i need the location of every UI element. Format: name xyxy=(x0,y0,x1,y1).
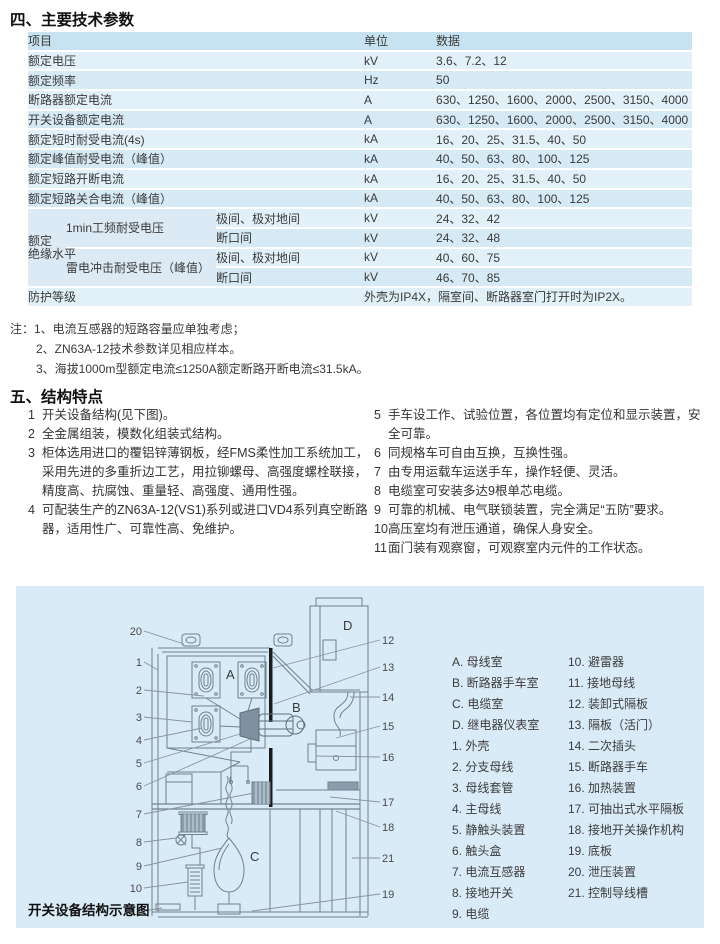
legend-column-2: 10. 避雷器 11. 接地母线 12. 装卸式隔板 13. 隔板（活门） 14… xyxy=(568,652,684,904)
legend-item: 6. 触头盒 xyxy=(452,841,539,862)
diagram-panel: 20 1 2 3 4 5 6 7 8 9 10 11 12 13 14 15 1… xyxy=(16,586,704,928)
row-data: 3.6、7.2、12 xyxy=(436,51,692,71)
row-unit: kA xyxy=(364,149,436,169)
row-data: 46、70、85 xyxy=(436,267,692,287)
legend-item: 19. 底板 xyxy=(568,841,684,862)
row-label: 防护等级 xyxy=(28,287,364,306)
legend-item: 5. 静触头装置 xyxy=(452,820,539,841)
callout-18: 18 xyxy=(382,822,394,834)
note-3: 3、海拔1000m型额定电流≤1250A额定断路开断电流≤31.5kA。 xyxy=(36,360,369,377)
parameters-table-wrap: 项目 单位 数据 额定电压 kV 3.6、7.2、12 额定频率 Hz 50 断… xyxy=(28,32,692,306)
feature-number: 2 xyxy=(28,425,35,444)
legend-column-1: A. 母线室 B. 断路器手车室 C. 电缆室 D. 继电器仪表室 1. 外壳 … xyxy=(452,652,539,925)
feature-item: 4 可配装生产的ZN63A-12(VS1)系列或进口VD4系列真空断路器，适用性… xyxy=(28,501,370,539)
row-scope: 断口间 xyxy=(216,267,364,287)
table-row-protection: 防护等级 外壳为IP4X，隔室间、断路器室门打开时为IP2X。 xyxy=(28,287,692,306)
table-row-insulation: 雷电冲击耐受电压（峰值） 极间、极对地间 kV 40、60、75 xyxy=(28,248,692,268)
compartment-A: A xyxy=(226,667,235,682)
legend-item: 3. 母线套管 xyxy=(452,778,539,799)
legend-item: 9. 电缆 xyxy=(452,904,539,925)
callout-6: 6 xyxy=(136,781,142,793)
legend-item: 14. 二次插头 xyxy=(568,736,684,757)
row-unit: kV xyxy=(364,208,436,228)
feature-text: 全金属组装，模数化组装式结构。 xyxy=(42,427,230,441)
callout-17: 17 xyxy=(382,797,394,809)
feature-item: 1 开关设备结构(见下图)。 xyxy=(28,406,370,425)
table-row-insulation: 额定 绝缘水平 1min工频耐受电压 极间、极对地间 kV 24、32、42 xyxy=(28,208,692,228)
row-unit: kA xyxy=(364,189,436,209)
callout-12: 12 xyxy=(382,635,394,647)
row-label: 额定电压 xyxy=(28,51,364,71)
row-data: 40、60、75 xyxy=(436,248,692,268)
row-data: 16、20、25、31.5、40、50 xyxy=(436,169,692,189)
feature-item: 8 电缆室可安装多达9根单芯电缆。 xyxy=(374,482,710,501)
row-scope: 断口间 xyxy=(216,228,364,248)
legend-item: A. 母线室 xyxy=(452,652,539,673)
feature-text: 电缆室可安装多达9根单芯电缆。 xyxy=(388,484,570,498)
row-label: 开关设备额定电流 xyxy=(28,110,364,130)
legend-item: B. 断路器手车室 xyxy=(452,673,539,694)
row-label: 断路器额定电流 xyxy=(28,90,364,110)
row-unit: kV xyxy=(364,51,436,71)
feature-text: 可配装生产的ZN63A-12(VS1)系列或进口VD4系列真空断路器，适用性广、… xyxy=(42,503,368,536)
row-unit: kA xyxy=(364,129,436,149)
callout-14: 14 xyxy=(382,692,394,704)
callout-1: 1 xyxy=(136,657,142,669)
row-label: 额定短时耐受电流(4s) xyxy=(28,129,364,149)
legend-item: D. 继电器仪表室 xyxy=(452,715,539,736)
feature-number: 1 xyxy=(28,406,35,425)
table-row: 开关设备额定电流 A 630、1250、1600、2000、2500、3150、… xyxy=(28,110,692,130)
parameters-table: 项目 单位 数据 额定电压 kV 3.6、7.2、12 额定频率 Hz 50 断… xyxy=(28,32,692,306)
note-2: 2、ZN63A-12技术参数详见相应样本。 xyxy=(36,340,241,357)
test-name: 1min工频耐受电压 xyxy=(66,208,216,247)
legend-item: 16. 加热装置 xyxy=(568,778,684,799)
row-unit: A xyxy=(364,90,436,110)
cabinet-outline xyxy=(152,598,368,917)
col-header-item: 项目 xyxy=(28,32,364,51)
row-scope: 极间、极对地间 xyxy=(216,208,364,228)
feature-text: 可靠的机械、电气联锁装置，完全满足“五防”要求。 xyxy=(388,503,671,517)
feature-number: 7 xyxy=(374,463,381,482)
feature-number: 8 xyxy=(374,482,381,501)
feature-item: 10 高压室均有泄压通道，确保人身安全。 xyxy=(374,520,710,539)
callout-13: 13 xyxy=(382,662,394,674)
callout-19: 19 xyxy=(382,889,394,901)
row-data: 16、20、25、31.5、40、50 xyxy=(436,129,692,149)
feature-item: 9 可靠的机械、电气联锁装置，完全满足“五防”要求。 xyxy=(374,501,710,520)
row-label: 额定峰值耐受电流（峰值） xyxy=(28,149,364,169)
row-label: 额定短路关合电流（峰值） xyxy=(28,189,364,209)
table-row: 额定频率 Hz 50 xyxy=(28,70,692,90)
row-data: 外壳为IP4X，隔室间、断路器室门打开时为IP2X。 xyxy=(364,287,692,306)
legend-item: 21. 控制导线槽 xyxy=(568,883,684,904)
legend-item: 1. 外壳 xyxy=(452,736,539,757)
table-row: 断路器额定电流 A 630、1250、1600、2000、2500、3150、4… xyxy=(28,90,692,110)
table-header-row: 项目 单位 数据 xyxy=(28,32,692,51)
legend-item: 18. 接地开关操作机构 xyxy=(568,820,684,841)
row-data: 630、1250、1600、2000、2500、3150、4000 xyxy=(436,110,692,130)
legend-item: 13. 隔板（活门） xyxy=(568,715,684,736)
row-scope: 极间、极对地间 xyxy=(216,248,364,268)
row-unit: kV xyxy=(364,248,436,268)
table-row: 额定短路开断电流 kA 16、20、25、31.5、40、50 xyxy=(28,169,692,189)
feature-number: 9 xyxy=(374,501,381,520)
cable-room-internals xyxy=(156,776,244,914)
row-unit: kV xyxy=(364,228,436,248)
row-data: 24、32、48 xyxy=(436,228,692,248)
row-unit: kA xyxy=(364,169,436,189)
test-name: 雷电冲击耐受电压（峰值） xyxy=(66,248,216,287)
feature-item: 6 同规格车可自由互换，互换性强。 xyxy=(374,444,710,463)
callout-labels-right: 12 13 14 15 16 17 18 21 19 xyxy=(382,635,394,901)
callout-15: 15 xyxy=(382,721,394,733)
row-unit: A xyxy=(364,110,436,130)
section4-title: 四、主要技术参数 xyxy=(10,8,134,30)
feature-item: 7 由专用运载车运送手车，操作轻便、灵活。 xyxy=(374,463,710,482)
row-unit: Hz xyxy=(364,70,436,90)
legend-item: 7. 电流互感器 xyxy=(452,862,539,883)
legend-item: 8. 接地开关 xyxy=(452,883,539,904)
callout-8: 8 xyxy=(136,837,142,849)
callout-20: 20 xyxy=(130,626,142,638)
legend-item: 2. 分支母线 xyxy=(452,757,539,778)
row-data: 40、50、63、80、100、125 xyxy=(436,149,692,169)
table-row: 额定电压 kV 3.6、7.2、12 xyxy=(28,51,692,71)
legend-item: 11. 接地母线 xyxy=(568,673,684,694)
features-left-column: 1 开关设备结构(见下图)。 2 全金属组装，模数化组装式结构。 3 柜体选用进… xyxy=(28,406,370,539)
insulation-group-label: 额定 绝缘水平 xyxy=(28,208,66,287)
feature-number: 4 xyxy=(28,501,35,520)
feature-text: 高压室均有泄压通道，确保人身安全。 xyxy=(388,522,601,536)
feature-number: 11 xyxy=(374,539,387,558)
callout-labels-left: 20 1 2 3 4 5 6 7 8 9 10 11 xyxy=(130,626,142,918)
callout-10: 10 xyxy=(130,883,142,895)
row-data: 24、32、42 xyxy=(436,208,692,228)
feature-item: 11 面门装有观察窗，可观察室内元件的工作状态。 xyxy=(374,539,710,558)
compartment-B: B xyxy=(292,700,301,715)
legend-item: 17. 可抽出式水平隔板 xyxy=(568,799,684,820)
feature-text: 柜体选用进口的覆铝锌薄钢板，经FMS柔性加工系统加工，采用先进的多重折边工艺，用… xyxy=(42,446,368,498)
features-right-column: 5 手车设工作、试验位置，各位置均有定位和显示装置，安全可靠。 6 同规格车可自… xyxy=(374,406,710,558)
group-label-line2: 绝缘水平 xyxy=(28,248,66,261)
feature-text: 由专用运载车运送手车，操作轻便、灵活。 xyxy=(388,465,626,479)
table-row: 额定短时耐受电流(4s) kA 16、20、25、31.5、40、50 xyxy=(28,129,692,149)
note-1: 注：1、电流互感器的短路容量应单独考虑； xyxy=(10,320,245,337)
callout-4: 4 xyxy=(136,735,142,747)
legend-item: 4. 主母线 xyxy=(452,799,539,820)
feature-text: 同规格车可自由互换，互换性强。 xyxy=(388,446,576,460)
feature-number: 5 xyxy=(374,406,381,425)
callout-21: 21 xyxy=(382,853,394,865)
legend-item: 10. 避雷器 xyxy=(568,652,684,673)
leader-lines xyxy=(144,631,380,911)
feature-item: 3 柜体选用进口的覆铝锌薄钢板，经FMS柔性加工系统加工，采用先进的多重折边工艺… xyxy=(28,444,370,501)
callout-7: 7 xyxy=(136,809,142,821)
feature-item: 2 全金属组装，模数化组装式结构。 xyxy=(28,425,370,444)
row-unit: kV xyxy=(364,267,436,287)
table-row: 额定短路关合电流（峰值） kA 40、50、63、80、100、125 xyxy=(28,189,692,209)
legend-item: 20. 泄压装置 xyxy=(568,862,684,883)
row-data: 50 xyxy=(436,70,692,90)
section5-title: 五、结构特点 xyxy=(10,385,103,407)
legend-item: C. 电缆室 xyxy=(452,694,539,715)
document-page: 四、主要技术参数 项目 单位 数据 额定电压 kV 3.6、7.2、12 额定频… xyxy=(0,0,720,944)
callout-3: 3 xyxy=(136,712,142,724)
table-row: 额定峰值耐受电流（峰值） kA 40、50、63、80、100、125 xyxy=(28,149,692,169)
feature-number: 10 xyxy=(374,520,388,539)
col-header-unit: 单位 xyxy=(364,32,436,51)
row-label: 额定短路开断电流 xyxy=(28,169,364,189)
group-label-line1: 额定 xyxy=(28,235,66,248)
feature-text: 面门装有观察窗，可观察室内元件的工作状态。 xyxy=(388,541,651,555)
legend-item: 15. 断路器手车 xyxy=(568,757,684,778)
callout-9: 9 xyxy=(136,861,142,873)
compartment-C: C xyxy=(250,849,259,864)
legend-item: 12. 装卸式隔板 xyxy=(568,694,684,715)
diagram-caption: 开关设备结构示意图 xyxy=(28,899,150,919)
callout-2: 2 xyxy=(136,685,142,697)
row-data: 40、50、63、80、100、125 xyxy=(436,189,692,209)
feature-number: 6 xyxy=(374,444,381,463)
callout-16: 16 xyxy=(382,752,394,764)
feature-number: 3 xyxy=(28,444,35,463)
callout-5: 5 xyxy=(136,758,142,770)
row-label: 额定频率 xyxy=(28,70,364,90)
feature-item: 5 手车设工作、试验位置，各位置均有定位和显示装置，安全可靠。 xyxy=(374,406,710,444)
compartment-D: D xyxy=(343,618,352,633)
feature-text: 开关设备结构(见下图)。 xyxy=(42,408,175,422)
col-header-data: 数据 xyxy=(436,32,692,51)
feature-text: 手车设工作、试验位置，各位置均有定位和显示装置，安全可靠。 xyxy=(388,408,701,441)
row-data: 630、1250、1600、2000、2500、3150、4000 xyxy=(436,90,692,110)
